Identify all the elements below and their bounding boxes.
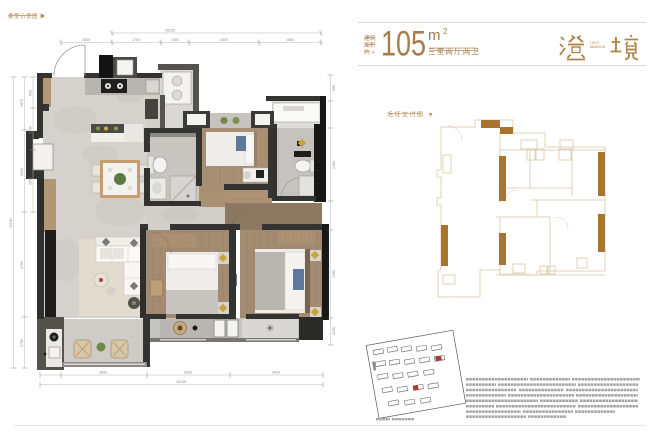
svg-text:4150: 4150 — [332, 270, 336, 278]
svg-text:2450: 2450 — [332, 161, 336, 169]
svg-text:1450: 1450 — [29, 126, 33, 134]
svg-text:15235: 15235 — [176, 380, 186, 384]
svg-text:3800: 3800 — [99, 371, 107, 375]
svg-text:m: m — [428, 27, 441, 44]
svg-text:105: 105 — [381, 25, 426, 64]
svg-text:约 >: 约 > — [364, 48, 375, 56]
svg-text:2800: 2800 — [220, 38, 228, 42]
svg-text:950: 950 — [29, 90, 33, 96]
svg-text:套型示意图 ▶: 套型示意图 ▶ — [8, 12, 46, 20]
svg-text:3000: 3000 — [184, 371, 192, 375]
svg-text:15235: 15235 — [165, 29, 175, 33]
svg-text:三室两厅两卫: 三室两厅两卫 — [428, 46, 480, 56]
svg-text:面积: 面积 — [364, 41, 376, 49]
svg-text:建筑: 建筑 — [364, 34, 376, 42]
svg-text:毛坯交付图 ▼: 毛坯交付图 ▼ — [387, 111, 435, 119]
svg-text:3400: 3400 — [272, 371, 280, 375]
svg-text:2000: 2000 — [29, 177, 33, 185]
svg-text:1975: 1975 — [20, 99, 24, 107]
svg-text:1750: 1750 — [20, 339, 24, 347]
svg-text:1750: 1750 — [132, 38, 140, 42]
svg-text:1800: 1800 — [286, 38, 294, 42]
svg-text:4750: 4750 — [20, 261, 24, 269]
svg-text:1500: 1500 — [171, 38, 179, 42]
svg-text:2: 2 — [443, 27, 448, 36]
svg-text:900: 900 — [332, 85, 336, 91]
svg-text:3000: 3000 — [20, 168, 24, 176]
svg-text:2830: 2830 — [82, 38, 90, 42]
svg-text:1150: 1150 — [332, 327, 336, 335]
svg-text:11150: 11150 — [9, 218, 13, 227]
svg-text:MANSION: MANSION — [590, 45, 606, 49]
